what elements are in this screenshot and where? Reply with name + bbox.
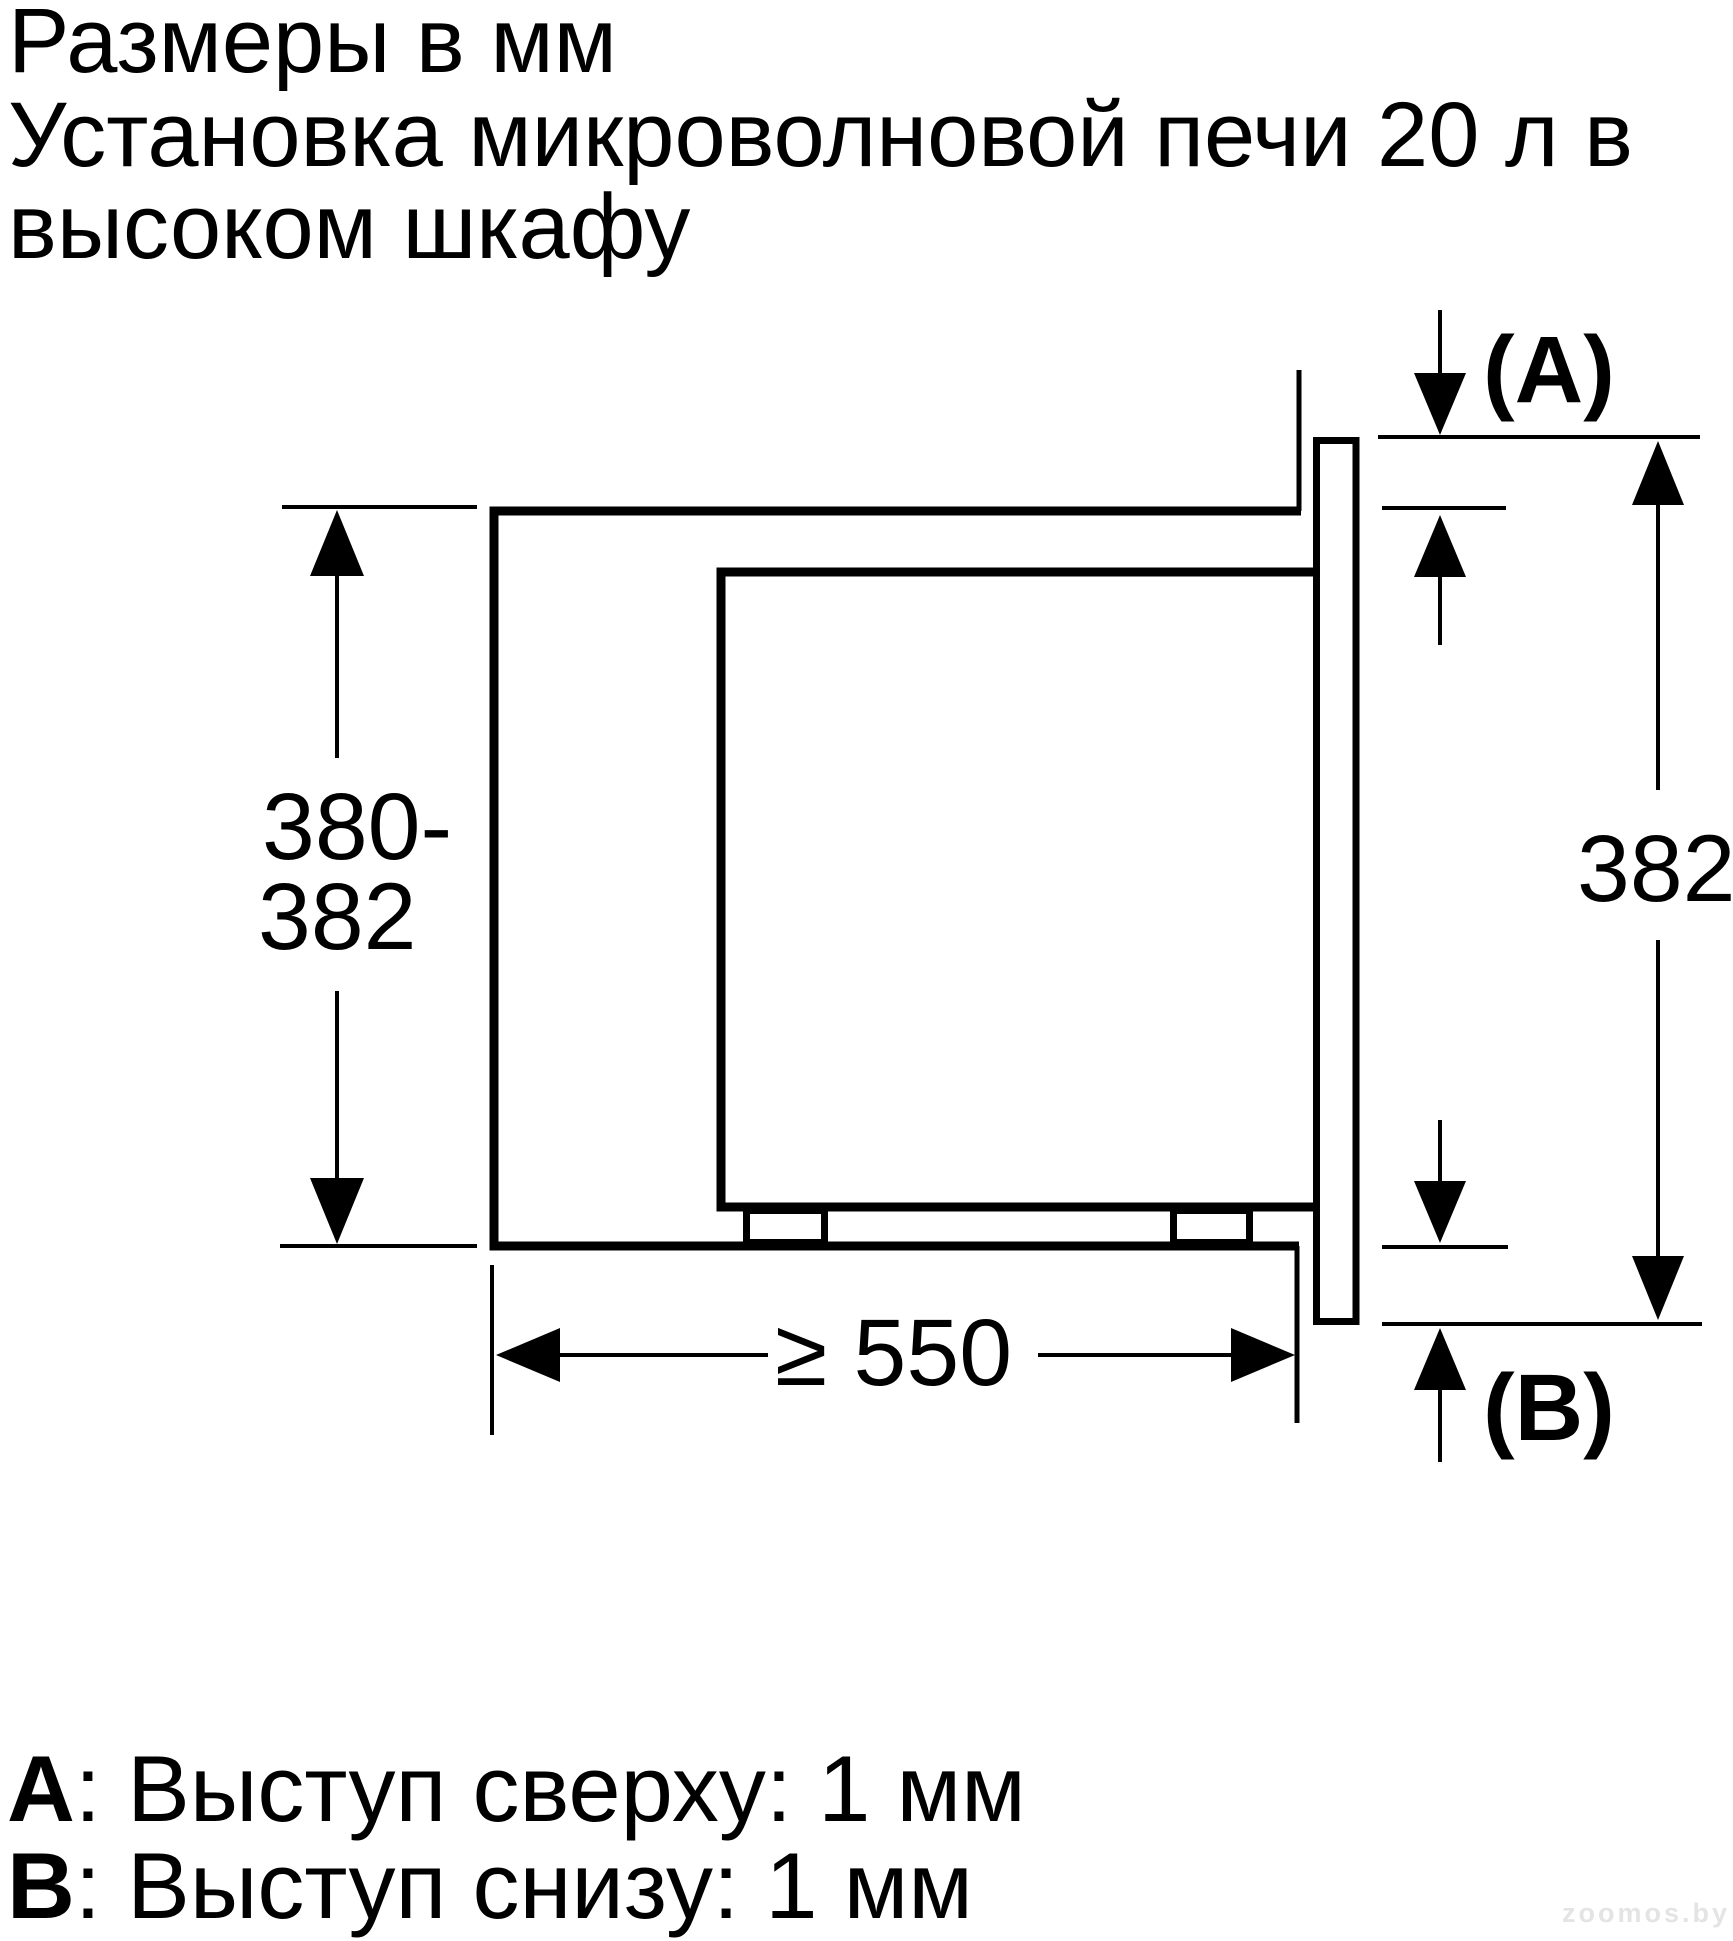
- installation-drawing-page: Размеры в мм Установка микроволновой печ…: [0, 0, 1733, 1941]
- arrowhead-down-icon: [310, 1178, 364, 1244]
- arrowhead-left-icon: [496, 1328, 560, 1382]
- dim-min-depth: ≥ 550: [492, 1265, 1295, 1435]
- watermark: zoomos.by: [1562, 1898, 1730, 1928]
- title-line-1: Размеры в мм: [8, 0, 617, 92]
- oven-foot-right: [1174, 1211, 1250, 1243]
- arrowhead-right-icon: [1231, 1328, 1295, 1382]
- note-b: B: Выступ снизу: 1 мм: [7, 1833, 973, 1938]
- overhang-top-label: (A): [1483, 317, 1615, 423]
- niche-height-value-line2: 382: [258, 864, 417, 970]
- dim-niche-height: 380- 382: [258, 507, 477, 1246]
- arrowhead-up-icon: [1414, 1328, 1466, 1390]
- cabinet-outline: [494, 511, 1301, 1246]
- arrowhead-down-icon: [1414, 373, 1466, 435]
- arrowhead-up-icon: [1414, 515, 1466, 577]
- oven-feet: [747, 1211, 1250, 1243]
- front-height-value: 382: [1577, 816, 1733, 922]
- cabinet-side-wall: [1297, 370, 1299, 1423]
- page-title: Размеры в мм Установка микроволновой печ…: [8, 0, 1633, 278]
- oven-foot-left: [747, 1211, 825, 1243]
- arrowhead-up-icon: [1632, 441, 1684, 505]
- dim-overhang-bottom: (B): [1382, 1120, 1615, 1462]
- overhang-bottom-label: (B): [1483, 1355, 1615, 1461]
- front-trim-panel: [1317, 441, 1357, 1322]
- min-depth-value: ≥ 550: [775, 1300, 1012, 1406]
- title-line-3: высоком шкафу: [8, 176, 690, 278]
- arrowhead-down-icon: [1414, 1181, 1466, 1243]
- installation-diagram: Размеры в мм Установка микроволновой печ…: [0, 0, 1733, 1941]
- cabinet-niche-section: [494, 511, 1301, 1246]
- dim-overhang-top: (A): [1382, 310, 1615, 645]
- title-line-2: Установка микроволновой печи 20 л в: [8, 84, 1633, 186]
- arrowhead-down-icon: [1632, 1256, 1684, 1320]
- note-a: A: Выступ сверху: 1 мм: [7, 1736, 1026, 1841]
- oven-outline: [721, 572, 1313, 1207]
- front-frame-section: [1317, 441, 1357, 1322]
- footnotes: A: Выступ сверху: 1 мм B: Выступ снизу: …: [7, 1736, 1026, 1938]
- arrowhead-up-icon: [310, 510, 364, 576]
- oven-body-section: [721, 572, 1313, 1207]
